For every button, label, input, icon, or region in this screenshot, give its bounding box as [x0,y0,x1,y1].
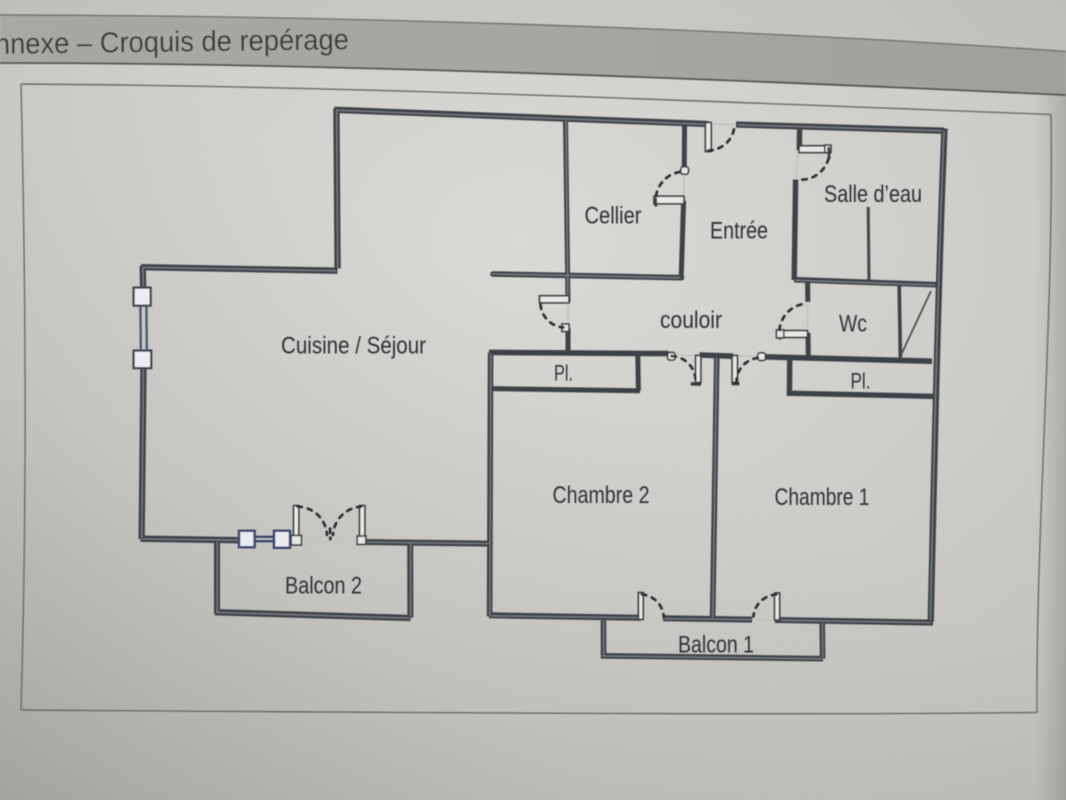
svg-text:couloir: couloir [660,307,722,334]
svg-text:Cellier: Cellier [585,203,642,230]
svg-text:Balcon 2: Balcon 2 [285,573,362,600]
svg-text:Wc: Wc [839,311,867,338]
svg-text:Cuisine / Séjour: Cuisine / Séjour [281,333,426,360]
svg-text:Salle d’eau: Salle d’eau [824,181,922,208]
svg-text:Pl.: Pl. [851,369,871,394]
svg-text:Chambre 2: Chambre 2 [553,482,650,509]
svg-text:Chambre 1: Chambre 1 [775,484,870,511]
svg-text:Balcon 1: Balcon 1 [678,632,754,659]
svg-text:nnexe – Croquis de repérage: nnexe – Croquis de repérage [0,24,349,61]
svg-text:Entrée: Entrée [710,218,768,245]
svg-text:Pl.: Pl. [554,361,573,386]
